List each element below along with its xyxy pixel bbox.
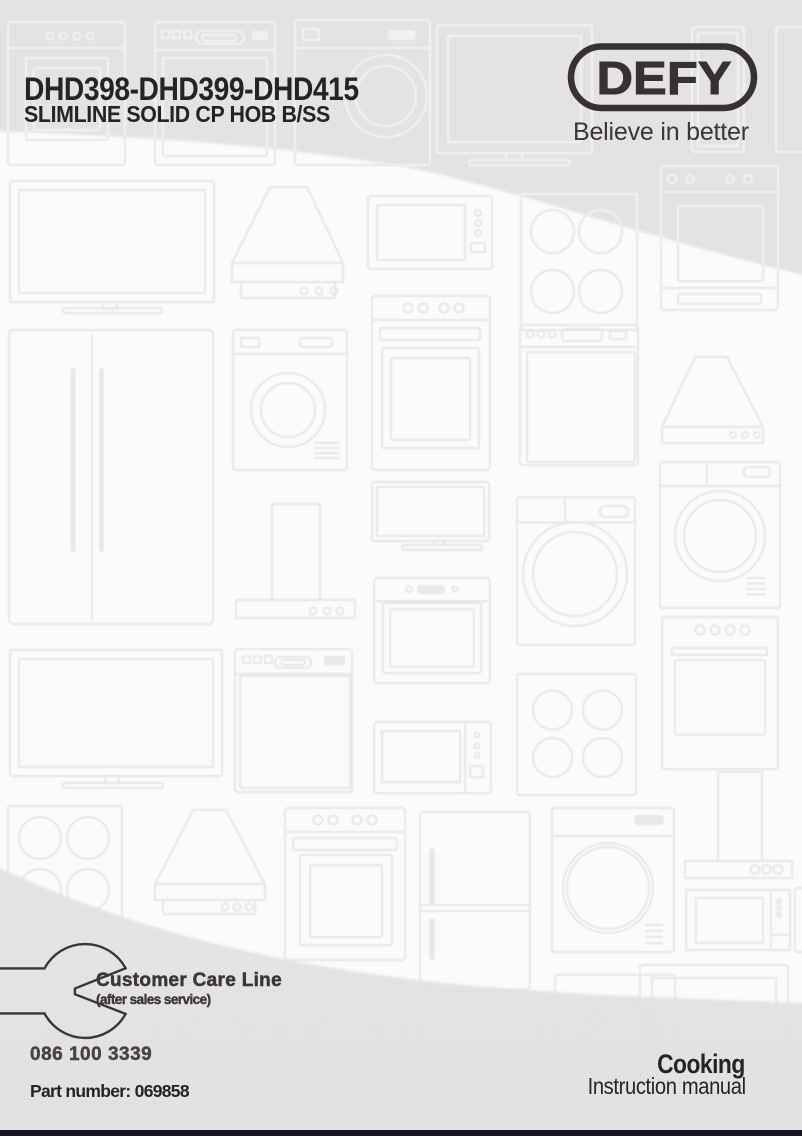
svg-text:DEFY: DEFY	[597, 52, 732, 104]
